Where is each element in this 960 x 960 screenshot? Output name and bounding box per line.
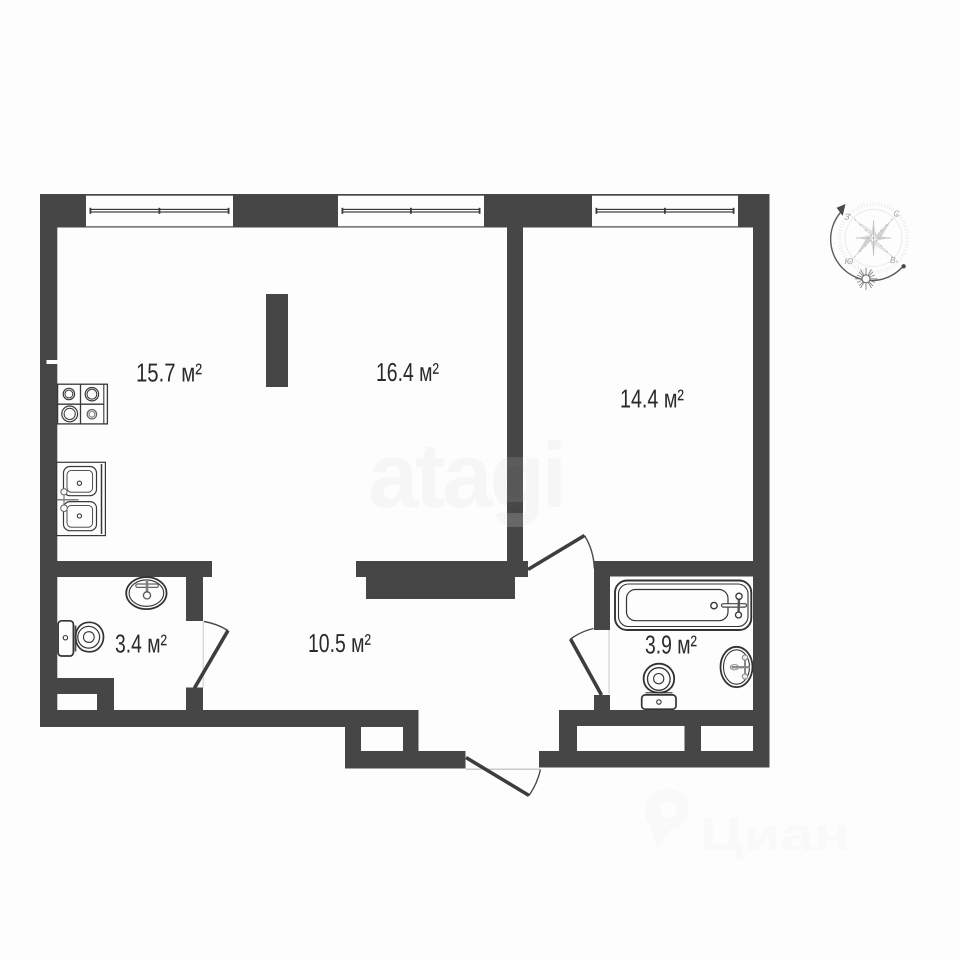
svg-text:Циан: Циан bbox=[700, 808, 850, 860]
svg-text:10.5 м²: 10.5 м² bbox=[308, 628, 371, 658]
svg-text:З: З bbox=[845, 212, 851, 222]
svg-text:3.9 м²: 3.9 м² bbox=[645, 630, 697, 660]
svg-text:Ю: Ю bbox=[845, 256, 854, 266]
svg-text:3.4 м²: 3.4 м² bbox=[115, 629, 167, 659]
svg-text:16.4 м²: 16.4 м² bbox=[376, 357, 439, 387]
svg-text:14.4 м²: 14.4 м² bbox=[620, 384, 684, 414]
svg-text:В: В bbox=[890, 255, 896, 265]
svg-text:atagi: atagi bbox=[368, 425, 564, 527]
svg-text:15.7 м²: 15.7 м² bbox=[136, 358, 202, 388]
svg-text:С: С bbox=[894, 209, 901, 219]
